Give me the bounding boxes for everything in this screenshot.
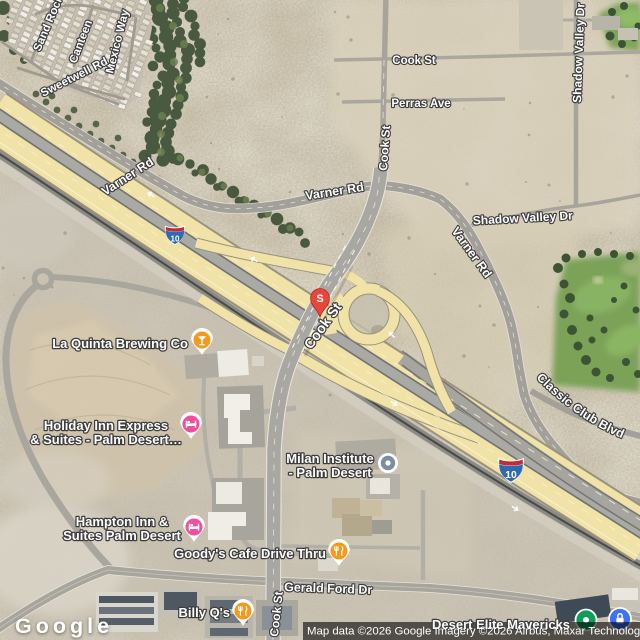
svg-text:- Palm Desert: - Palm Desert	[288, 465, 372, 480]
svg-text:& Suites - Palm Desert…: & Suites - Palm Desert…	[30, 432, 182, 447]
svg-text:Billy Q's: Billy Q's	[179, 605, 231, 620]
svg-text:Milan Institute: Milan Institute	[286, 451, 373, 466]
svg-text:Hampton Inn &: Hampton Inn &	[76, 514, 168, 529]
svg-text:Perras Ave: Perras Ave	[391, 98, 450, 110]
svg-text:Map data ©2026 Google Imagery: Map data ©2026 Google Imagery ©2026 Airb…	[307, 626, 640, 638]
svg-text:10: 10	[171, 234, 180, 243]
svg-text:Holiday Inn Express: Holiday Inn Express	[44, 418, 168, 433]
svg-text:Suites Palm Desert: Suites Palm Desert	[63, 528, 181, 543]
svg-text:Google: Google	[15, 614, 113, 638]
svg-text:Cook St: Cook St	[392, 55, 436, 67]
svg-text:10: 10	[505, 470, 517, 481]
svg-text:La Quinta Brewing Co: La Quinta Brewing Co	[52, 336, 188, 351]
svg-text:S: S	[316, 293, 323, 305]
svg-text:Goody's Cafe Drive Thru: Goody's Cafe Drive Thru	[174, 546, 326, 561]
